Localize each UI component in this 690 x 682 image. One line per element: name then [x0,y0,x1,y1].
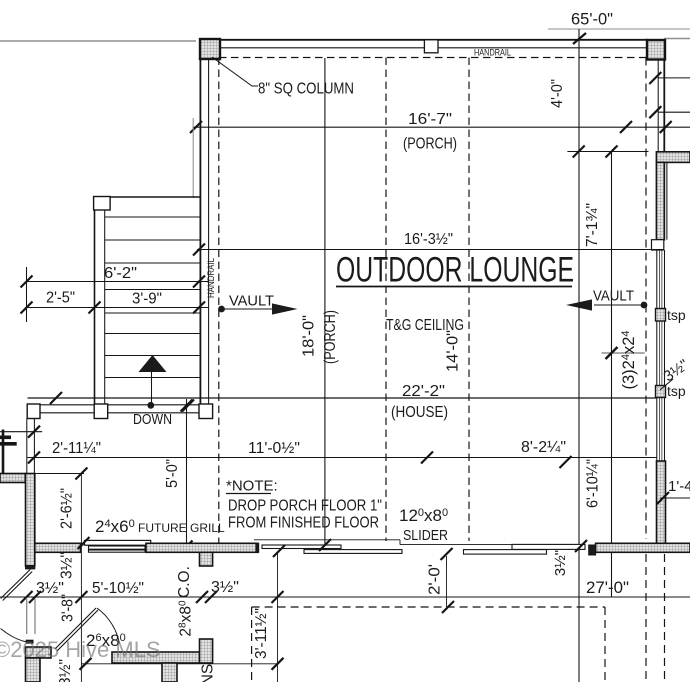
svg-text:65'-0": 65'-0" [571,10,613,29]
svg-text:VAULT: VAULT [593,288,634,305]
svg-text:120x80: 120x80 [399,506,448,525]
svg-text:6'-2": 6'-2" [104,265,137,282]
svg-text:3'-8": 3'-8" [60,594,77,622]
svg-text:3½": 3½" [59,552,76,579]
svg-text:2'-0': 2'-0' [427,564,444,595]
svg-text:11'-0½": 11'-0½" [248,440,300,457]
svg-text:1'-4¾": 1'-4¾" [668,478,690,495]
svg-text:tsp: tsp [667,383,686,399]
svg-text:VAULT: VAULT [229,293,274,310]
svg-text:8" SQ COLUMN: 8" SQ COLUMN [258,81,354,98]
svg-text:OUTDOOR LOUNGE: OUTDOOR LOUNGE [336,251,574,290]
svg-text:DOWN: DOWN [133,411,172,428]
svg-text:HANDRAIL: HANDRAIL [206,258,217,298]
svg-text:3½": 3½" [552,550,569,576]
svg-text:27'-0": 27'-0" [586,578,629,597]
svg-text:SLIDER: SLIDER [403,528,448,544]
svg-text:3½": 3½" [211,579,239,596]
svg-text:18'-0": 18'-0" [301,315,318,357]
svg-text:3½": 3½" [57,659,74,682]
svg-text:FROM FINISHED FLOOR: FROM FINISHED FLOOR [228,515,379,532]
svg-text:2'-6½": 2'-6½" [59,488,76,529]
svg-text:HANDRAIL: HANDRAIL [474,48,511,58]
svg-text:5'-10½": 5'-10½" [92,580,144,597]
svg-text:2'-11¼": 2'-11¼" [52,440,101,457]
svg-text:3'-9": 3'-9" [132,291,162,308]
svg-text:14'-0": 14'-0" [445,330,462,372]
svg-text:(HOUSE): (HOUSE) [391,404,448,421]
svg-text:5'-0": 5'-0" [164,459,181,488]
svg-text:7'-1¾": 7'-1¾" [584,203,601,247]
svg-text:2'-5": 2'-5" [46,290,75,307]
svg-text:*NOTE:: *NOTE: [226,478,278,495]
svg-text:16'-7": 16'-7" [408,111,452,128]
svg-text:C.O.: C.O. [176,566,193,598]
svg-text:(PORCH): (PORCH) [322,310,339,364]
svg-text:6'-10¼": 6'-10¼" [585,459,602,508]
svg-text:4'-0": 4'-0" [549,79,566,108]
svg-text:8'-2¼": 8'-2¼" [521,439,566,456]
svg-text:16'-3½": 16'-3½" [404,231,453,248]
svg-text:22'-2": 22'-2" [402,383,445,400]
svg-text:©2025 Hive MLS: ©2025 Hive MLS [0,637,161,662]
svg-text:3'-11½": 3'-11½" [253,608,270,659]
svg-text:(PORCH): (PORCH) [403,136,457,153]
svg-text:NS: NS [200,664,217,682]
svg-text:DROP PORCH FLOOR 1": DROP PORCH FLOOR 1" [228,498,382,515]
svg-text:tsp: tsp [667,307,686,323]
